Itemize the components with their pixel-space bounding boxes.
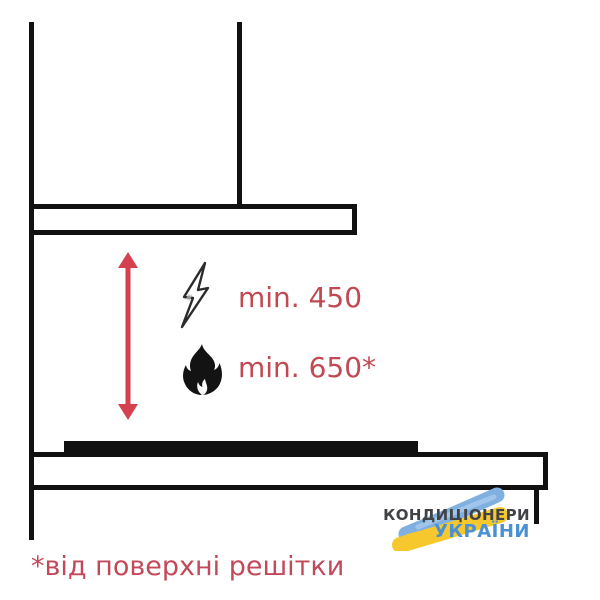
hood-outline: [29, 204, 357, 235]
counter-leg-line: [534, 489, 539, 524]
gas-clearance-label: min. 650*: [238, 354, 376, 382]
installation-diagram: min. 450 min. 650* КОНДИЦІОНЕРИ УКРАЇНИ …: [0, 0, 600, 600]
cabinet-divider-line: [237, 22, 242, 206]
electric-clearance-label: min. 450: [238, 284, 362, 312]
footnote-text: *від поверхні решітки: [31, 551, 344, 582]
counter-outline: [29, 452, 548, 490]
lightning-icon: [177, 261, 217, 329]
clearance-arrow: [115, 251, 141, 421]
brand-logo: КОНДИЦІОНЕРИ УКРАЇНИ: [378, 487, 554, 551]
logo-text-line2: УКРАЇНИ: [434, 521, 530, 542]
flame-icon: [181, 343, 223, 395]
